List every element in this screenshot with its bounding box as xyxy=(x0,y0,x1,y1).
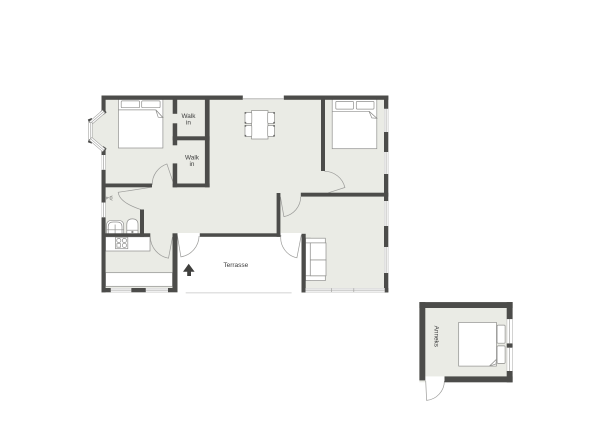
svg-text:in: in xyxy=(186,120,191,127)
svg-text:in: in xyxy=(190,161,195,168)
svg-text:Terrasse: Terrasse xyxy=(223,262,248,269)
svg-text:Anneks: Anneks xyxy=(432,326,439,347)
